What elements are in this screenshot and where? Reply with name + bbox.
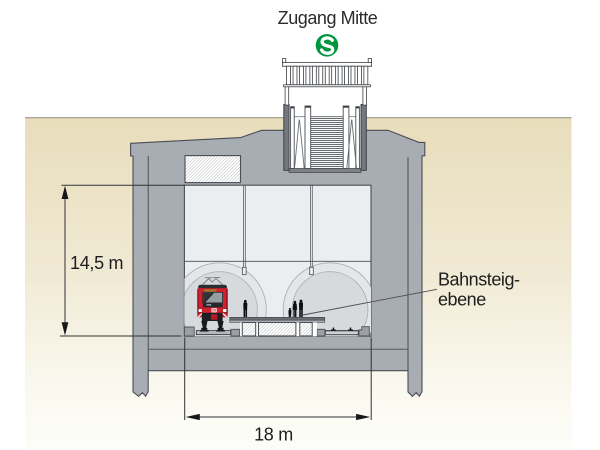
svg-text:ebene: ebene	[438, 290, 486, 310]
svg-text:18 m: 18 m	[254, 425, 293, 445]
svg-text:14,5 m: 14,5 m	[70, 253, 123, 273]
svg-text:Zugang Mitte: Zugang Mitte	[278, 8, 378, 28]
svg-text:DB: DB	[212, 309, 217, 313]
svg-text:Bahnsteig-: Bahnsteig-	[438, 270, 520, 290]
